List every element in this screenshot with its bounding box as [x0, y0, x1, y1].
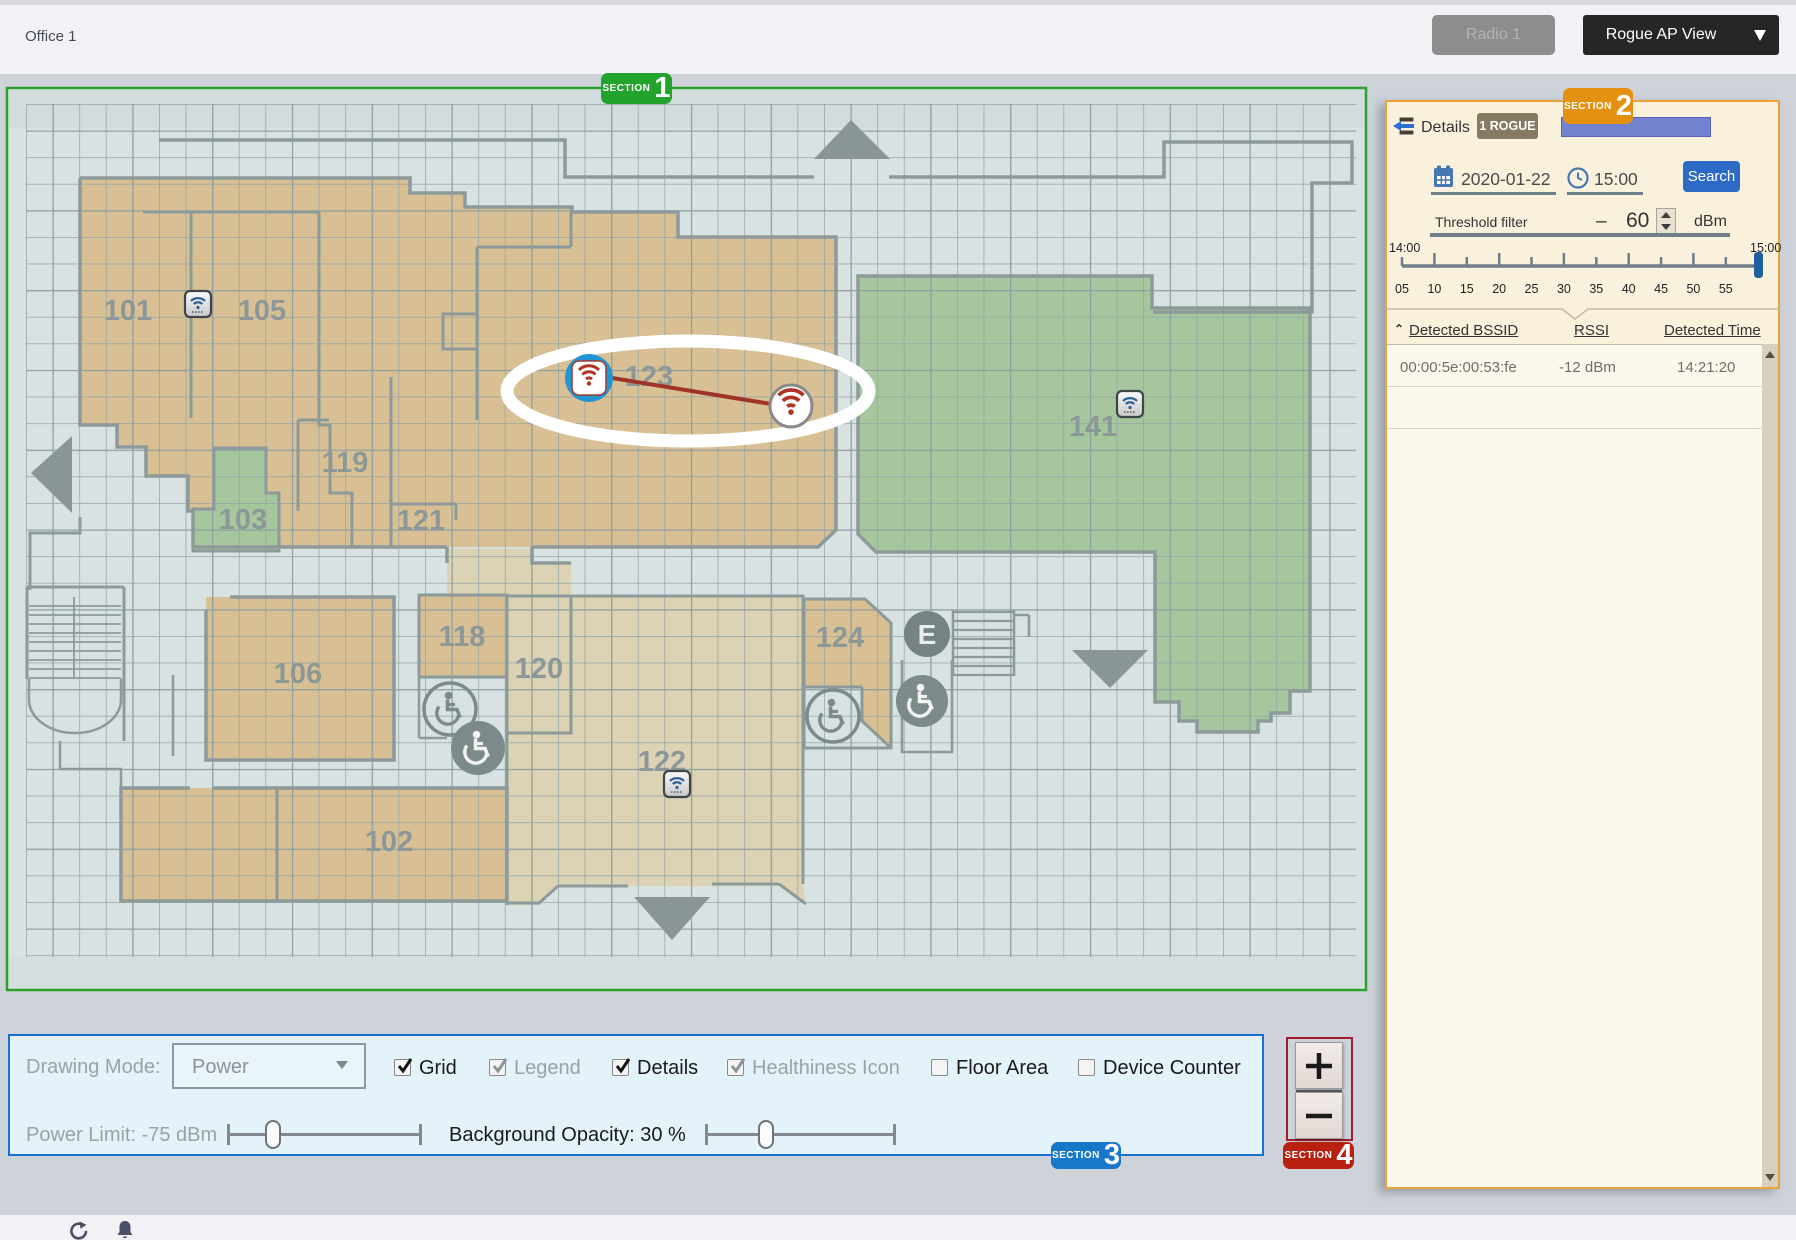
svg-text:106: 106	[274, 658, 322, 690]
svg-text:05: 05	[1395, 282, 1409, 296]
svg-text:119: 119	[322, 447, 369, 479]
svg-text:30: 30	[1557, 282, 1571, 296]
svg-text:124: 124	[816, 622, 864, 654]
svg-text:141: 141	[1069, 411, 1117, 443]
svg-text:121: 121	[397, 505, 445, 537]
svg-text:E: E	[918, 619, 937, 650]
svg-text:101: 101	[104, 295, 152, 327]
svg-text:20: 20	[1492, 282, 1506, 296]
svg-text:35: 35	[1589, 282, 1603, 296]
svg-text:102: 102	[365, 826, 413, 858]
svg-text:45: 45	[1654, 282, 1668, 296]
svg-text:15: 15	[1460, 282, 1474, 296]
svg-text:40: 40	[1622, 282, 1636, 296]
svg-text:118: 118	[439, 621, 486, 653]
svg-text:25: 25	[1525, 282, 1539, 296]
svg-text:105: 105	[238, 295, 286, 327]
svg-text:103: 103	[219, 504, 267, 536]
svg-text:55: 55	[1719, 282, 1733, 296]
svg-text:120: 120	[515, 653, 563, 685]
svg-text:50: 50	[1686, 282, 1700, 296]
svg-text:10: 10	[1427, 282, 1441, 296]
